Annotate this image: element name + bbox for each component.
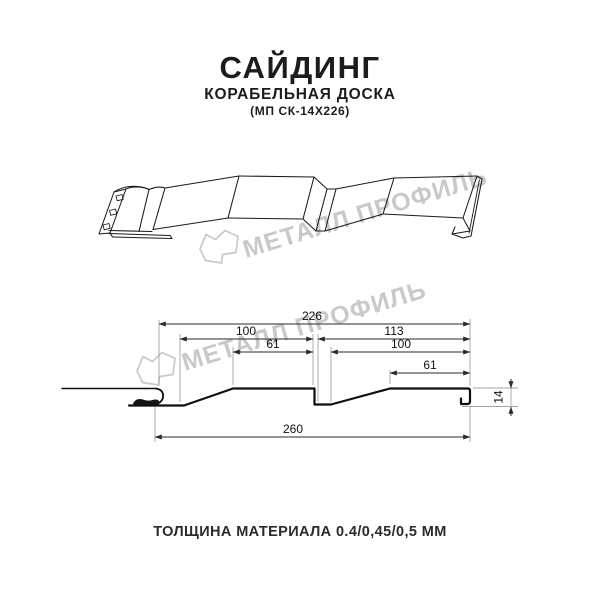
nail-hole bbox=[103, 224, 110, 230]
dim-board2-top: 113 bbox=[384, 324, 403, 338]
nail-hole bbox=[110, 209, 117, 215]
dim-profile-height: 14 bbox=[492, 390, 506, 404]
watermark-brand-text: МЕТАЛЛ ПРОФИЛЬ bbox=[240, 163, 491, 264]
dim-board2-inner: 100 bbox=[391, 337, 411, 351]
product-card: САЙДИНГ КОРАБЕЛЬНАЯ ДОСКА (МП СК-14Х226)… bbox=[0, 0, 600, 600]
technical-drawing-canvas: МЕТАЛЛ ПРОФИЛЬ МЕТАЛЛ ПРОФИЛЬ bbox=[0, 0, 600, 600]
brand-logo-icon bbox=[137, 353, 175, 386]
dim-board1-top: 100 bbox=[236, 324, 256, 338]
dim-overall-bottom: 260 bbox=[283, 422, 303, 436]
dim-board2-small: 61 bbox=[423, 358, 437, 372]
lock-hem-curl bbox=[133, 399, 160, 405]
thickness-note: ТОЛЩИНА МАТЕРИАЛА 0.4/0,45/0,5 ММ bbox=[0, 524, 600, 540]
profile-section-outline bbox=[152, 389, 470, 406]
brand-watermark-upper: МЕТАЛЛ ПРОФИЛЬ bbox=[200, 163, 491, 264]
dim-board1-inner: 61 bbox=[266, 337, 280, 351]
nail-hole bbox=[116, 195, 123, 201]
dim-overall-top: 226 bbox=[302, 309, 322, 323]
brand-logo-icon bbox=[200, 231, 238, 264]
